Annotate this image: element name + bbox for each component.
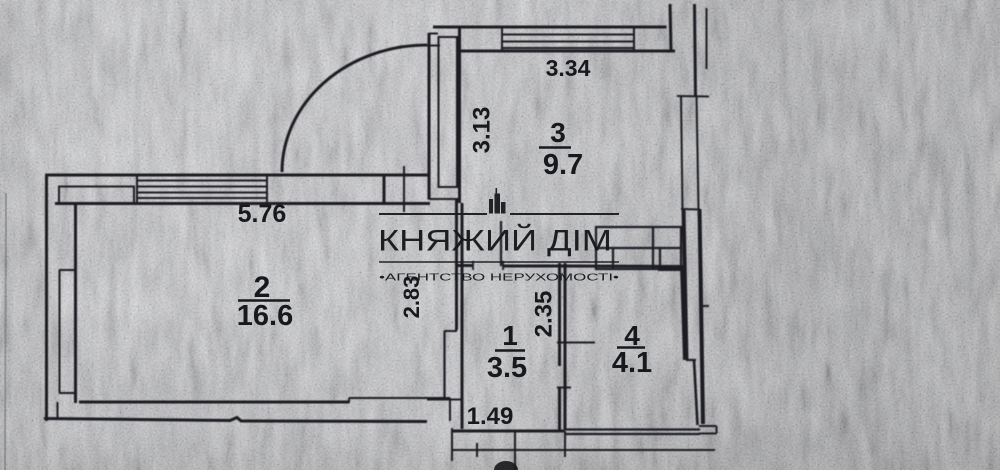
svg-text:1.49: 1.49 (467, 403, 514, 430)
svg-text:16.6: 16.6 (237, 300, 293, 332)
svg-text:3.13: 3.13 (468, 107, 495, 154)
svg-text:1: 1 (502, 320, 518, 351)
svg-text:9.7: 9.7 (543, 149, 583, 181)
svg-text:4.1: 4.1 (612, 347, 652, 379)
svg-text:5.76: 5.76 (238, 200, 287, 228)
svg-text:3.34: 3.34 (546, 55, 591, 81)
svg-text:КНЯЖИЙ ДІМ: КНЯЖИЙ ДІМ (378, 224, 612, 258)
svg-text:3.5: 3.5 (487, 352, 527, 384)
svg-text:2.35: 2.35 (530, 291, 557, 338)
svg-text:3: 3 (550, 117, 566, 148)
svg-text:•АГЕНТСТВО НЕРУХОМОСТІ•: •АГЕНТСТВО НЕРУХОМОСТІ• (379, 272, 620, 284)
